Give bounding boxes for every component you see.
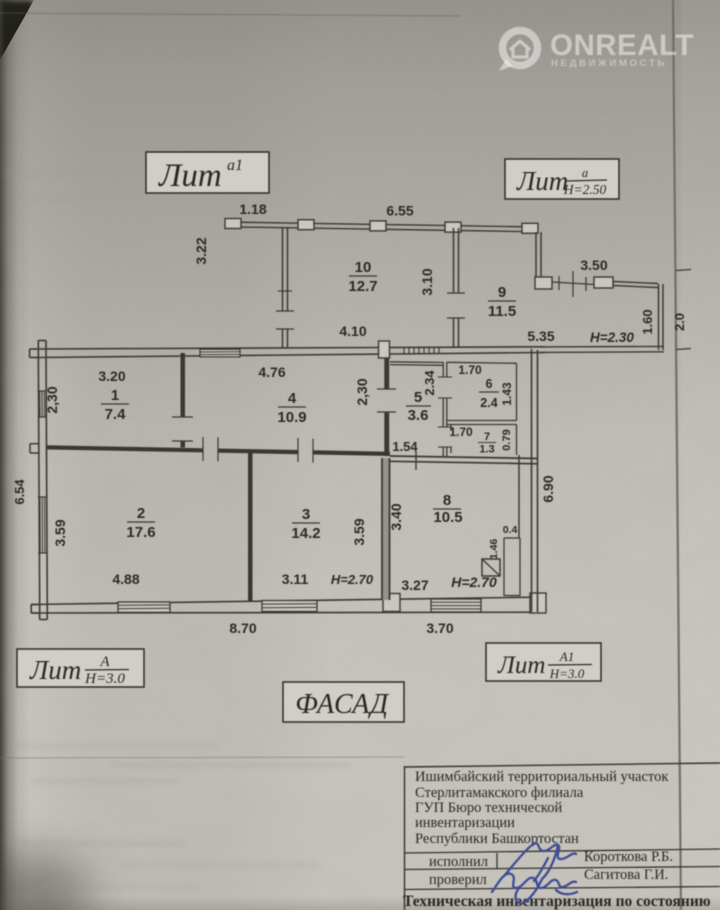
svg-text:3.6: 3.6 bbox=[408, 407, 429, 424]
svg-text:1: 1 bbox=[111, 387, 119, 404]
svg-text:Лит: Лит bbox=[29, 655, 81, 685]
svg-text:1.70: 1.70 bbox=[449, 425, 473, 439]
svg-text:8.70: 8.70 bbox=[229, 620, 256, 636]
svg-text:1.60: 1.60 bbox=[640, 309, 655, 334]
svg-text:Короткова Р.Б.: Короткова Р.Б. bbox=[584, 849, 673, 865]
svg-text:3.10: 3.10 bbox=[419, 268, 435, 295]
svg-text:1.54: 1.54 bbox=[392, 439, 418, 454]
svg-text:ГУП Бюро технической: ГУП Бюро технической bbox=[415, 800, 562, 816]
svg-text:Лит: Лит bbox=[497, 652, 546, 679]
svg-text:6.54: 6.54 bbox=[12, 479, 27, 505]
svg-text:2.0: 2.0 bbox=[672, 313, 687, 331]
svg-text:инвентаризации: инвентаризации bbox=[415, 815, 515, 831]
svg-text:ФАСАД: ФАСАД bbox=[295, 689, 390, 720]
svg-text:14.2: 14.2 bbox=[291, 525, 320, 542]
svg-text:2,30: 2,30 bbox=[44, 386, 60, 413]
svg-text:а1: а1 bbox=[227, 157, 243, 174]
svg-text:Н=3.0: Н=3.0 bbox=[84, 671, 125, 687]
svg-text:6.90: 6.90 bbox=[540, 475, 556, 502]
svg-text:3.27: 3.27 bbox=[401, 577, 428, 593]
svg-text:а: а bbox=[582, 166, 588, 180]
svg-text:9: 9 bbox=[498, 284, 506, 301]
svg-text:Стерлитамакского филиала: Стерлитамакского филиала bbox=[415, 785, 584, 801]
svg-text:11.5: 11.5 bbox=[488, 303, 516, 320]
svg-text:проверил: проверил bbox=[429, 872, 487, 888]
svg-text:2,30: 2,30 bbox=[354, 378, 370, 405]
svg-text:5: 5 bbox=[414, 389, 422, 406]
svg-text:НЕДВИЖИМОСТЬ: НЕДВИЖИМОСТЬ bbox=[551, 58, 667, 69]
svg-text:7: 7 bbox=[484, 431, 490, 443]
svg-text:2: 2 bbox=[137, 505, 145, 522]
svg-text:4.88: 4.88 bbox=[112, 571, 139, 587]
svg-text:8: 8 bbox=[443, 492, 451, 509]
svg-text:Лит: Лит bbox=[158, 158, 222, 194]
svg-text:3: 3 bbox=[302, 506, 310, 523]
svg-text:2.34: 2.34 bbox=[422, 370, 437, 396]
svg-text:1.70: 1.70 bbox=[458, 363, 482, 377]
svg-text:Н=3.0: Н=3.0 bbox=[549, 666, 585, 681]
svg-text:2.4: 2.4 bbox=[480, 396, 497, 410]
svg-text:3.22: 3.22 bbox=[193, 237, 209, 264]
svg-text:3.59: 3.59 bbox=[52, 519, 68, 546]
svg-text:17.6: 17.6 bbox=[126, 524, 155, 541]
svg-text:Сагитова Г.И.: Сагитова Г.И. bbox=[584, 867, 668, 883]
svg-text:7.4: 7.4 bbox=[105, 406, 127, 423]
svg-text:4.10: 4.10 bbox=[339, 323, 366, 339]
svg-text:3.40: 3.40 bbox=[388, 503, 404, 530]
svg-text:Н=2.50: Н=2.50 bbox=[563, 182, 607, 197]
svg-text:1.18: 1.18 bbox=[239, 201, 266, 217]
svg-text:10.9: 10.9 bbox=[277, 409, 306, 426]
svg-text:Техническая инвентаризация по: Техническая инвентаризация по состоянию bbox=[403, 893, 711, 910]
svg-text:исполнил: исполнил bbox=[429, 854, 488, 870]
svg-text:5.35: 5.35 bbox=[527, 328, 554, 344]
svg-text:Ишимбайский территориальный уч: Ишимбайский территориальный участок bbox=[415, 769, 669, 785]
svg-text:А: А bbox=[99, 654, 110, 670]
svg-text:3.20: 3.20 bbox=[98, 368, 125, 384]
svg-text:12.7: 12.7 bbox=[348, 278, 377, 295]
svg-text:Н=2.30: Н=2.30 bbox=[590, 330, 634, 345]
svg-text:3.59: 3.59 bbox=[351, 518, 367, 545]
svg-text:Лит: Лит bbox=[516, 166, 568, 196]
svg-text:10.5: 10.5 bbox=[433, 509, 462, 526]
svg-text:4: 4 bbox=[288, 390, 297, 407]
svg-text:10: 10 bbox=[355, 259, 372, 276]
svg-text:6: 6 bbox=[486, 377, 493, 391]
svg-text:4.76: 4.76 bbox=[258, 364, 285, 380]
svg-text:1.3: 1.3 bbox=[479, 444, 494, 456]
svg-text:3.11: 3.11 bbox=[282, 571, 309, 587]
svg-text:1.43: 1.43 bbox=[500, 382, 514, 406]
svg-text:Н=2.70: Н=2.70 bbox=[331, 572, 374, 587]
svg-text:0.79: 0.79 bbox=[501, 429, 513, 450]
svg-text:3.50: 3.50 bbox=[580, 257, 607, 273]
svg-text:3.70: 3.70 bbox=[426, 620, 453, 636]
svg-text:А1: А1 bbox=[559, 649, 574, 664]
svg-text:6.55: 6.55 bbox=[386, 203, 413, 219]
svg-text:1.46: 1.46 bbox=[488, 539, 500, 560]
svg-text:0.4: 0.4 bbox=[503, 524, 518, 536]
